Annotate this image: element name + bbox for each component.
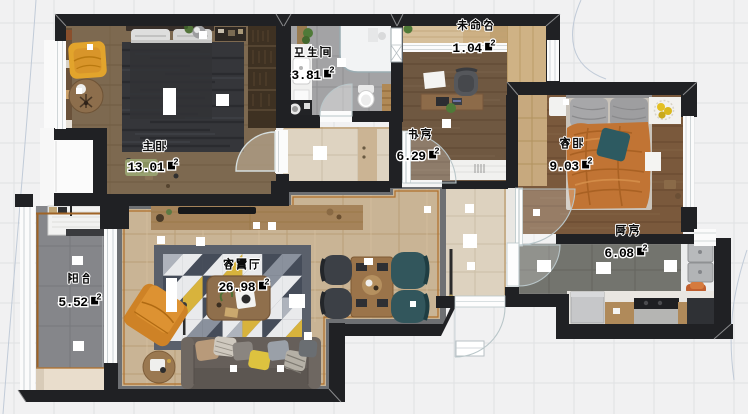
svg-text:2: 2 <box>96 293 101 303</box>
svg-text:26.98: 26.98 <box>219 280 256 295</box>
svg-text:2: 2 <box>264 278 269 288</box>
svg-text:6.08: 6.08 <box>604 246 634 261</box>
svg-text:1.04: 1.04 <box>452 41 482 56</box>
svg-text:2: 2 <box>587 157 592 167</box>
svg-text:3.81: 3.81 <box>291 68 321 83</box>
svg-text:2: 2 <box>434 147 439 157</box>
svg-text:2: 2 <box>642 243 647 253</box>
svg-text:6.29: 6.29 <box>396 149 426 164</box>
svg-text:13.01: 13.01 <box>128 160 165 175</box>
svg-text:5.52: 5.52 <box>58 295 88 310</box>
svg-text:9.03: 9.03 <box>549 159 579 174</box>
svg-text:2: 2 <box>329 66 334 76</box>
svg-text:2: 2 <box>173 158 178 168</box>
svg-text:2: 2 <box>490 39 495 49</box>
